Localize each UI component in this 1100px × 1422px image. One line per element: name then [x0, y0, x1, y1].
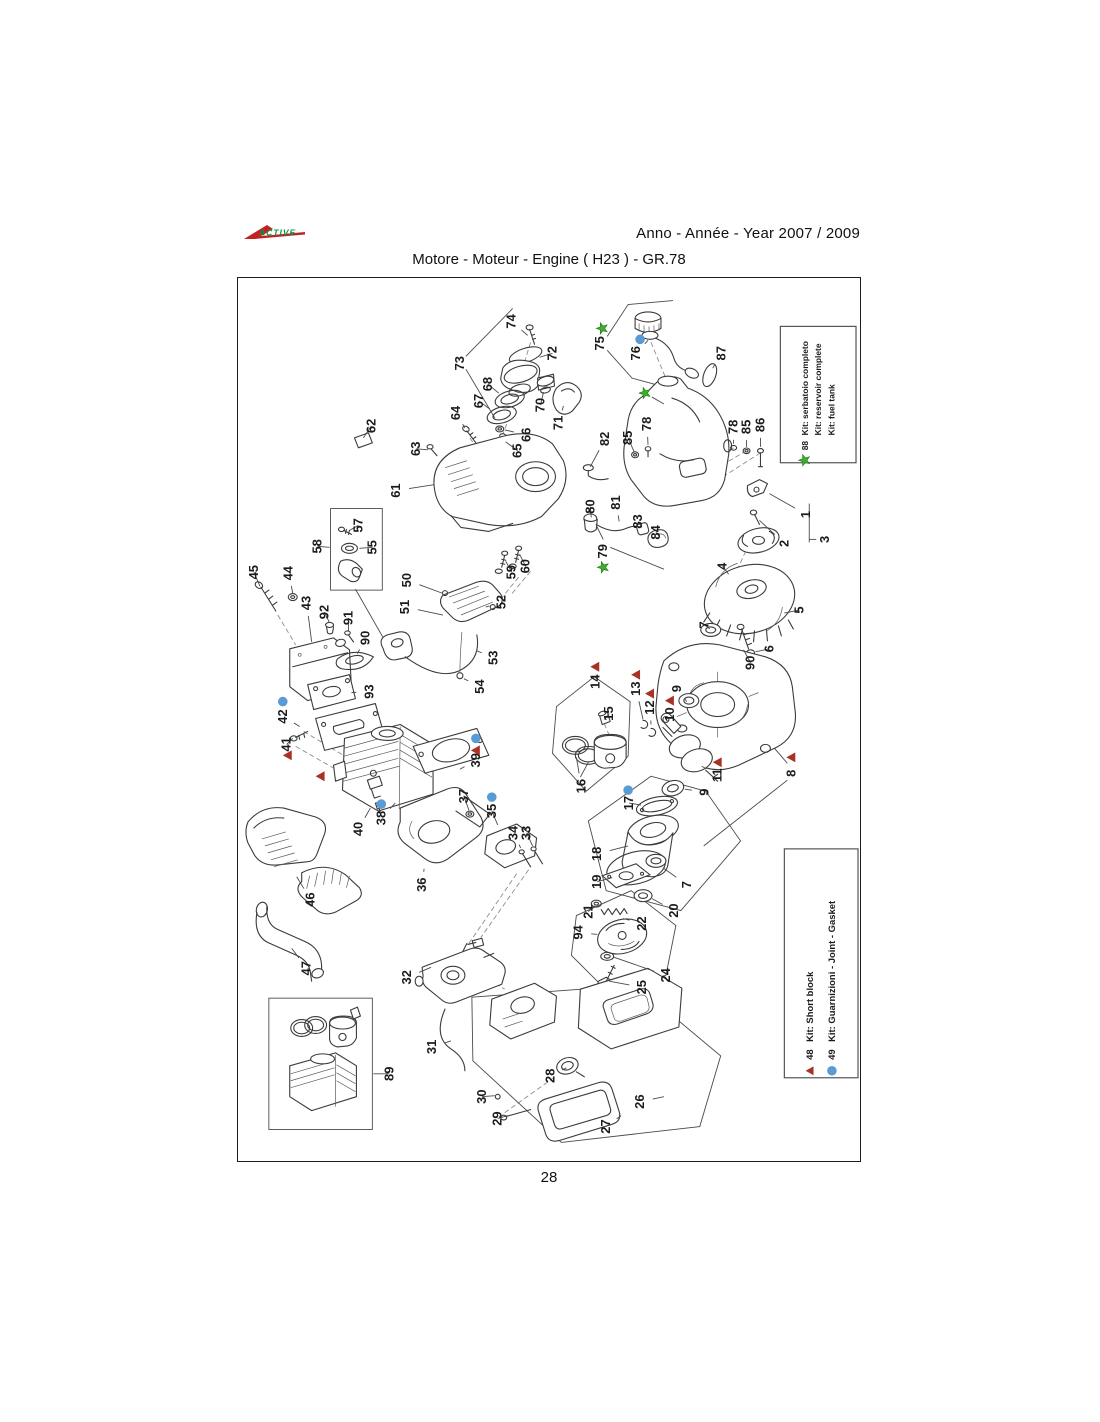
- fuel-tank: [624, 376, 732, 506]
- legend-kit-text: Kit: Guarnizioni - Joint - Gasket: [827, 900, 838, 1042]
- terminal-54: [457, 673, 463, 679]
- tube-47: [255, 901, 325, 981]
- cylinder-48: [334, 724, 434, 811]
- part-label-42: 42: [275, 709, 290, 723]
- spring-22: [601, 909, 627, 915]
- legend-parts-kits-box: [784, 849, 858, 1078]
- washer-44: [288, 594, 297, 601]
- legend-kit-text: Kit: fuel tank: [827, 384, 837, 435]
- part-label-33: 33: [519, 826, 534, 840]
- rings-67-68: [485, 387, 526, 426]
- part-label-19: 19: [589, 875, 604, 889]
- part-label-9: 9: [669, 685, 684, 692]
- part-label-71: 71: [550, 416, 565, 430]
- part-label-94: 94: [570, 924, 585, 939]
- part-label-50: 50: [399, 573, 414, 587]
- part-label-80: 80: [582, 499, 597, 513]
- part-label-15: 15: [601, 706, 616, 720]
- starter-cup-70-73: [501, 360, 540, 398]
- kit-star-marker: [596, 323, 607, 334]
- pin-30: [495, 1094, 500, 1099]
- part-label-63: 63: [408, 442, 423, 456]
- part-label-79: 79: [595, 544, 610, 558]
- part-label-66: 66: [519, 428, 534, 442]
- part-label-38: 38: [373, 811, 388, 825]
- kit-circle-marker: [827, 1066, 837, 1076]
- part-label-16: 16: [573, 779, 588, 793]
- page-number: 28: [237, 1169, 861, 1186]
- kit-circle-marker: [623, 785, 633, 795]
- part-label-76: 76: [628, 346, 643, 360]
- part-label-85: 85: [620, 431, 635, 445]
- part-label-47: 47: [299, 961, 314, 975]
- part-label-58: 58: [310, 539, 325, 553]
- part-label-5: 5: [791, 606, 806, 613]
- screw-34: [519, 850, 524, 854]
- bearing-7b: [646, 854, 666, 867]
- screw-45: [254, 580, 264, 589]
- part-label-26: 26: [632, 1094, 647, 1108]
- part-label-43: 43: [299, 596, 314, 610]
- part-label-83: 83: [630, 514, 645, 528]
- part-label-70: 70: [533, 398, 548, 412]
- screw-2: [750, 510, 756, 515]
- fuel-line-31: [440, 1009, 465, 1071]
- kit89-rings: [291, 1017, 327, 1037]
- part-label-32: 32: [399, 970, 414, 984]
- part-label-59: 59: [504, 565, 519, 579]
- kit-circle-marker: [278, 697, 288, 707]
- logo-text: ACTIVE: [258, 228, 296, 238]
- nut-37: [466, 811, 474, 817]
- kit-triangle-marker: [631, 670, 640, 680]
- part-label-14: 14: [587, 674, 602, 689]
- primer-bulb-28: [555, 1055, 585, 1077]
- part-label-57: 57: [350, 518, 365, 532]
- part-label-73: 73: [452, 356, 467, 370]
- carburetor-32: [415, 938, 505, 1003]
- part-label-74: 74: [504, 313, 519, 328]
- screw-63: [427, 445, 433, 449]
- plug-92: [326, 622, 334, 633]
- kit-star-marker: [597, 562, 608, 573]
- part-label-92: 92: [317, 605, 332, 619]
- part-label-11: 11: [710, 768, 725, 782]
- part-label-81: 81: [608, 495, 623, 509]
- part-label-4: 4: [715, 562, 730, 570]
- part-label-12: 12: [642, 700, 657, 714]
- part-label-68: 68: [480, 377, 495, 391]
- part-label-41: 41: [279, 737, 294, 751]
- part-label-9: 9: [697, 789, 712, 796]
- kit-circle-marker: [635, 335, 645, 345]
- part-label-54: 54: [472, 679, 487, 694]
- part-label-18: 18: [589, 847, 604, 861]
- ratchet-plate-3: [735, 524, 781, 557]
- kit-circle-marker: [471, 734, 481, 744]
- part-label-64: 64: [448, 405, 463, 420]
- part-label-55: 55: [364, 540, 379, 554]
- clip-62: [354, 433, 372, 448]
- part-label-25: 25: [634, 980, 649, 994]
- catalog-page: ACTIVE Anno - Année - Year 2007 / 2009 M…: [0, 0, 1100, 1422]
- kit-triangle-marker: [590, 662, 599, 672]
- elbow-58: [338, 560, 362, 582]
- part-label-22: 22: [634, 916, 649, 930]
- legend-kit-number: 48: [805, 1049, 816, 1060]
- part-label-35: 35: [484, 804, 499, 818]
- part-label-40: 40: [350, 822, 365, 836]
- gasket-87: [700, 362, 719, 389]
- kit89-cylinder: [290, 1053, 357, 1111]
- part-label-89: 89: [381, 1067, 396, 1081]
- part-label-45: 45: [246, 565, 261, 579]
- part-label-3: 3: [817, 536, 832, 543]
- part-label-44: 44: [281, 565, 296, 580]
- part-label-7: 7: [697, 621, 712, 628]
- handle-71: [553, 383, 581, 415]
- part-label-8: 8: [783, 770, 798, 777]
- part-label-93: 93: [361, 684, 376, 698]
- legend-kit-text: Kit: serbatoio completo: [800, 341, 810, 435]
- part-label-27: 27: [598, 1119, 613, 1133]
- washer-24: [601, 952, 614, 960]
- part-label-91: 91: [340, 611, 355, 625]
- part-label-75: 75: [592, 336, 607, 350]
- bearing-9: [679, 694, 699, 708]
- part-label-67: 67: [471, 394, 486, 408]
- kit-triangle-marker: [645, 689, 654, 699]
- part-label-86: 86: [752, 418, 767, 432]
- part-label-61: 61: [388, 483, 403, 497]
- kit89-piston: [330, 1007, 361, 1047]
- breather-82: [583, 465, 608, 480]
- spark-plug-boot: [381, 632, 478, 674]
- part-label-20: 20: [666, 903, 681, 917]
- part-label-62: 62: [363, 419, 378, 433]
- active-logo: ACTIVE: [243, 222, 313, 244]
- part-label-87: 87: [714, 346, 729, 360]
- seal-20: [634, 890, 652, 902]
- part-label-90: 90: [743, 656, 758, 670]
- screw-33: [531, 847, 536, 851]
- part-label-53: 53: [486, 651, 501, 665]
- page-title: Motore - Moteur - Engine ( H23 ) - GR.78: [237, 251, 861, 268]
- part-label-21: 21: [580, 904, 595, 918]
- part-label-84: 84: [648, 524, 663, 539]
- part-label-51: 51: [397, 600, 412, 614]
- part-label-17: 17: [621, 796, 636, 810]
- part-label-46: 46: [303, 892, 318, 906]
- bearing-9b: [660, 778, 685, 798]
- pawl-1: [747, 480, 767, 497]
- part-label-10: 10: [662, 707, 677, 721]
- part-label-37: 37: [456, 789, 471, 803]
- part-label-2: 2: [776, 540, 791, 547]
- engine-cover-61: [434, 434, 566, 532]
- part-label-78: 78: [639, 417, 654, 431]
- exploded-diagram: 7473726867707164666562636175768782857878…: [238, 278, 859, 1160]
- pin-91: [345, 631, 351, 635]
- year-label: Anno - Année - Year 2007 / 2009: [520, 225, 860, 242]
- part-label-28: 28: [542, 1069, 557, 1083]
- nut-85b: [743, 448, 750, 454]
- legend-kit-number: 49: [827, 1049, 838, 1060]
- fuel-filter-80: [584, 514, 597, 532]
- legend-kit-text: Kit: Short block: [805, 971, 816, 1042]
- screw-64: [462, 425, 471, 433]
- washer-55: [342, 543, 358, 553]
- part-label-36: 36: [414, 878, 429, 892]
- kit-triangle-marker: [786, 752, 795, 762]
- legend-kit-number: 88: [800, 441, 810, 451]
- part-label-65: 65: [510, 444, 525, 458]
- piston: [594, 734, 626, 768]
- part-label-85: 85: [739, 420, 754, 434]
- part-label-13: 13: [628, 681, 643, 695]
- part-label-7: 7: [679, 881, 694, 888]
- legend-kit-text: Kit: reservoir complete: [813, 343, 823, 435]
- part-label-30: 30: [474, 1089, 489, 1103]
- part-label-6: 6: [761, 645, 776, 652]
- part-label-52: 52: [494, 595, 509, 609]
- kit-circle-marker: [377, 799, 387, 809]
- fuel-cap-76: [635, 312, 700, 380]
- diagram-frame: 7473726867707164666562636175768782857878…: [237, 277, 861, 1162]
- part-label-60: 60: [518, 559, 533, 573]
- part-label-31: 31: [424, 1040, 439, 1054]
- airbox-backplate: [490, 983, 557, 1039]
- circlips-12-13: [641, 720, 656, 736]
- part-label-39: 39: [468, 753, 483, 767]
- part-label-24: 24: [658, 967, 673, 982]
- part-label-29: 29: [490, 1111, 505, 1125]
- part-label-90: 90: [357, 631, 372, 645]
- part-label-72: 72: [544, 346, 559, 360]
- part-label-1: 1: [798, 511, 813, 518]
- washer-66: [496, 426, 504, 432]
- kit-circle-marker: [487, 792, 497, 802]
- part-label-82: 82: [597, 432, 612, 446]
- kit-triangle-marker: [316, 771, 325, 781]
